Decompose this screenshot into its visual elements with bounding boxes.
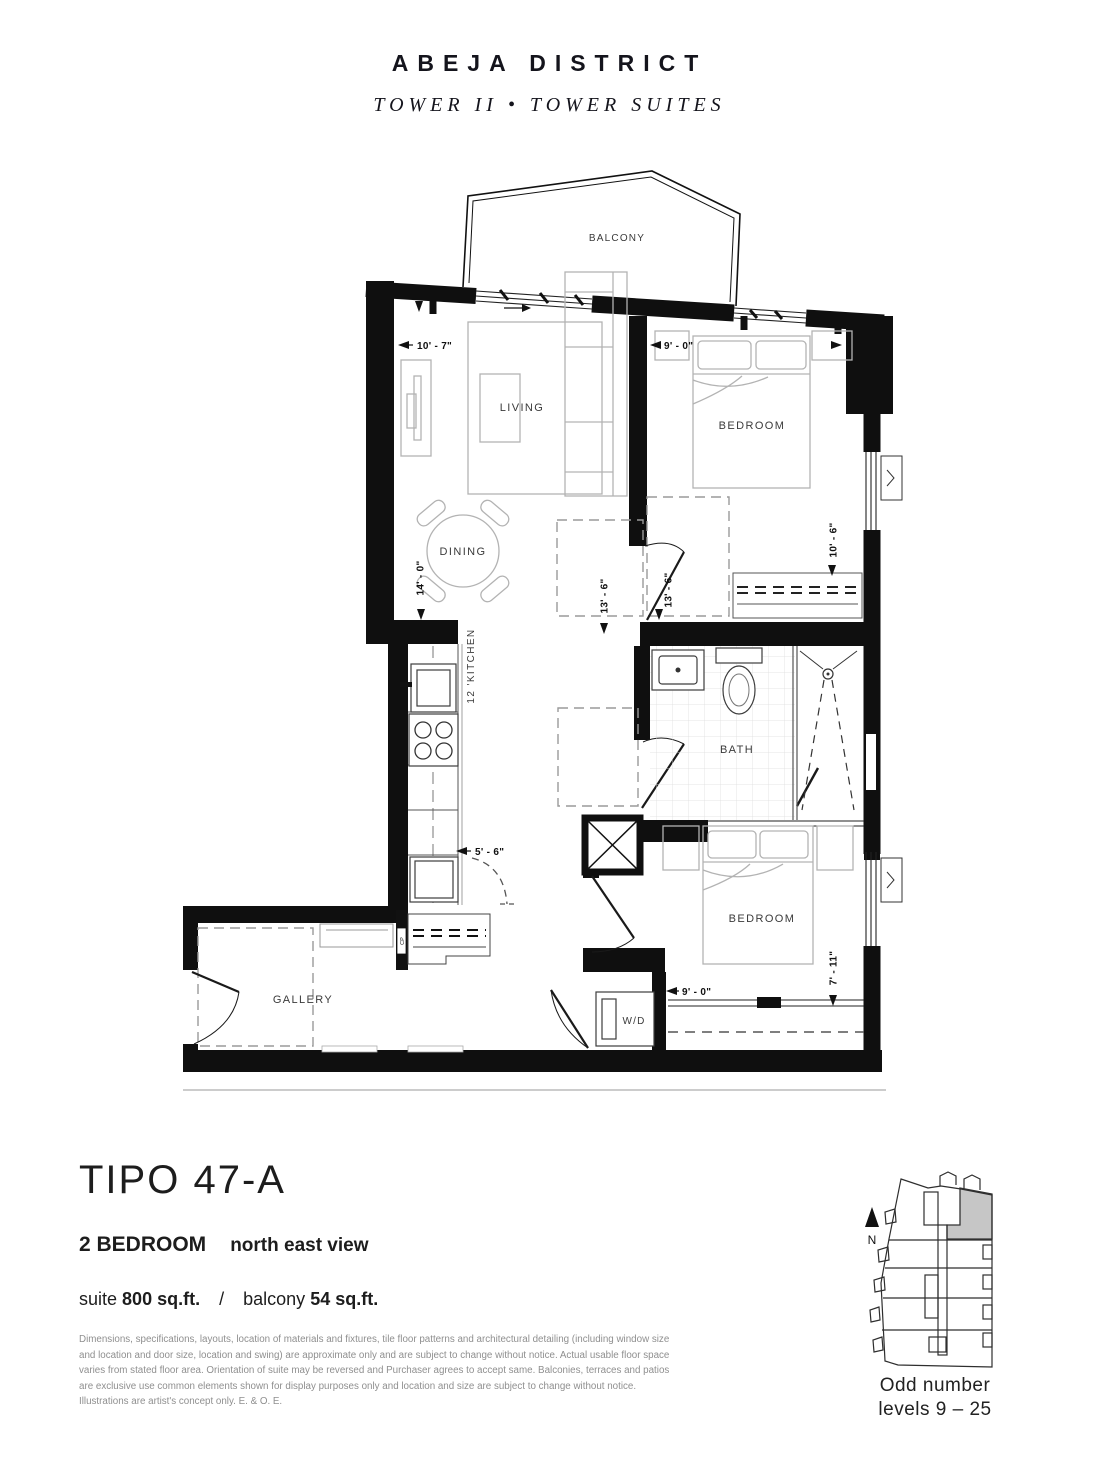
operable-window-icon (881, 858, 902, 902)
living-furniture (401, 272, 627, 604)
gallery-label: GALLERY (273, 994, 333, 1006)
washer-dryer: W/D (596, 992, 654, 1046)
dim-hall-right: 13' - 6" (664, 572, 675, 607)
tower-subtitle: TOWER II • TOWER SUITES (0, 94, 1099, 117)
suite-area: 800 sq.ft. (122, 1289, 200, 1309)
bedroom-top-closet (733, 573, 862, 618)
disclaimer-text: Dimensions, specifications, layouts, loc… (79, 1332, 679, 1410)
bedroom-count: 2 BEDROOM (79, 1233, 206, 1256)
key-plan-building (870, 1172, 992, 1367)
bedroom-bottom-label: BEDROOM (729, 913, 796, 925)
bedroom-top-label: BEDROOM (719, 420, 786, 432)
operable-window-icon (881, 456, 902, 500)
north-arrow-icon: N (865, 1207, 879, 1247)
plan-type-line: 2 BEDROOMnorth east view (79, 1233, 369, 1257)
balcony-outline: BALCONY (463, 171, 740, 306)
dining-label: DINING (440, 546, 487, 558)
plan-name: TIPO 47-A (79, 1158, 286, 1203)
kitchen-label: 12 'KITCHEN (466, 628, 477, 703)
balcony-area-label: balcony (243, 1289, 305, 1309)
keyplan-caption-line2: levels 9 – 25 (878, 1399, 991, 1420)
dim-bedroom-bottom-width: 9' - 0" (682, 987, 711, 998)
keyplan-caption-line1: Odd number (880, 1375, 991, 1396)
bedroom-top-furniture (655, 331, 862, 618)
bedroom-bottom-furniture (663, 826, 853, 964)
living-label: LIVING (500, 402, 544, 414)
dim-bedroom-top-depth: 10' - 6" (829, 522, 840, 557)
dim-kitchen-width: 5' - 6" (475, 847, 504, 858)
kitchen-fixtures (400, 644, 462, 905)
dim-bedroom-bottom-depth: 7' - 11" (829, 951, 840, 986)
area-line: suite 800 sq.ft. / balcony 54 sq.ft. (79, 1289, 378, 1310)
brochure-page: ABEJA DISTRICT TOWER II • TOWER SUITES B… (0, 0, 1099, 1471)
bath-fixtures (650, 646, 857, 820)
dim-bedroom-top-width: 9' - 0" (664, 341, 693, 352)
brand-title: ABEJA DISTRICT (0, 50, 1099, 77)
shaft-box (585, 818, 640, 872)
cooktop (409, 714, 458, 766)
washer-dryer-label: W/D (622, 1016, 645, 1027)
balcony-label: BALCONY (589, 233, 645, 244)
floor-plan: BALCONY (0, 150, 1099, 1100)
highlighted-unit (947, 1188, 992, 1239)
suite-label: suite (79, 1289, 117, 1309)
dim-living-depth: 14' - 0" (416, 560, 427, 595)
dim-living-width: 10' - 7" (417, 341, 452, 352)
header: ABEJA DISTRICT TOWER II • TOWER SUITES (0, 50, 1099, 117)
key-plan: N Odd number levels 9 – 25 (845, 1155, 1085, 1425)
view-direction: north east view (230, 1235, 368, 1256)
windows-layer (322, 290, 902, 1052)
balcony-area: 54 sq.ft. (310, 1289, 378, 1309)
dim-hall-left: 13' - 6" (600, 578, 611, 613)
area-divider: / (219, 1289, 224, 1309)
bath-label: BATH (720, 744, 754, 756)
north-label: N (868, 1233, 877, 1247)
closet-label: CP (400, 937, 406, 945)
